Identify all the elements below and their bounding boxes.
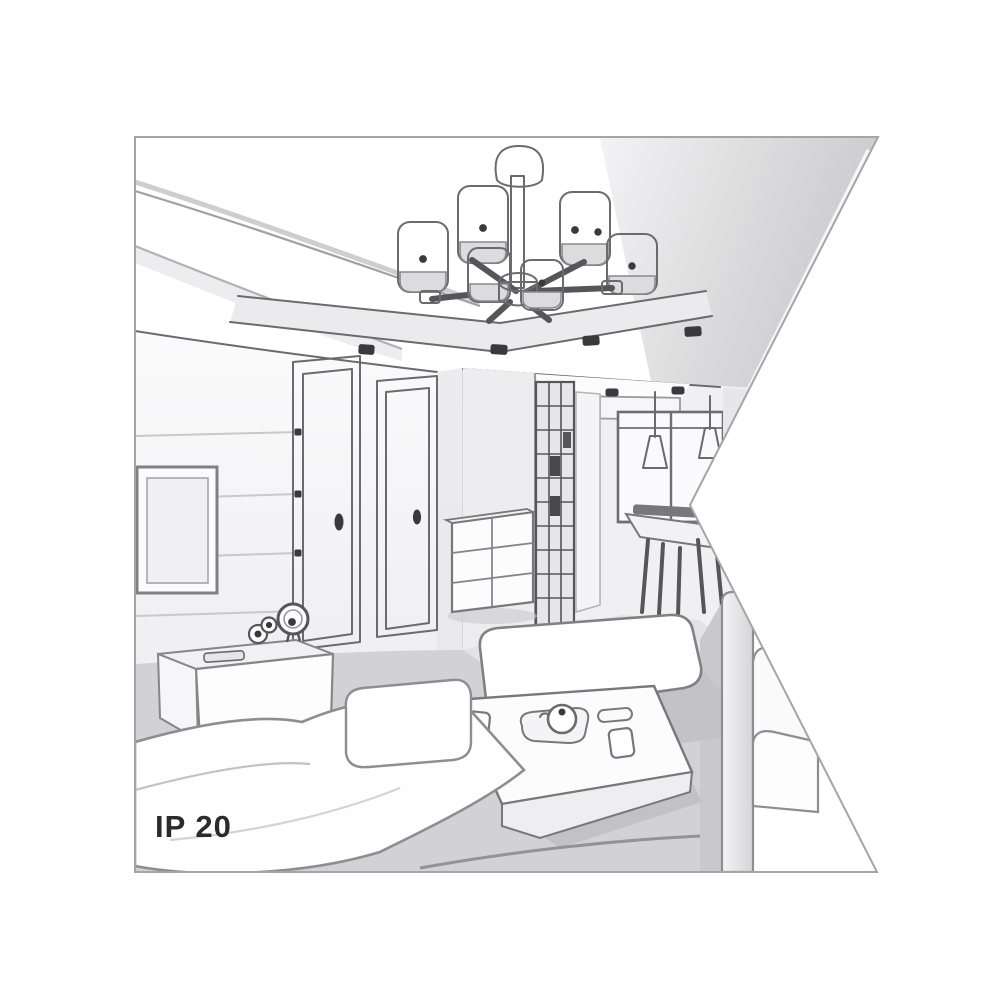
ip-rating-label: IP 20: [155, 809, 232, 844]
room-line-drawing: IP 20: [0, 0, 1000, 1000]
downlight-icon: [606, 389, 618, 396]
plate-icon: [598, 708, 633, 723]
downlight-icon: [491, 344, 508, 354]
glass-cabinet: [536, 382, 574, 626]
downlight-icon: [685, 326, 702, 336]
downlight-icon: [359, 345, 375, 355]
door-handle-icon: [335, 514, 343, 530]
remote-on-sideboard: [204, 651, 245, 663]
cup-icon: [608, 727, 635, 758]
tv-screen: [137, 467, 217, 593]
downlight-icon: [583, 335, 600, 345]
door-handle-icon: [413, 510, 420, 524]
hallway: [463, 368, 762, 650]
product-illustration-room-sketch: IP 20: [0, 0, 1000, 1000]
downlight-icon: [672, 387, 684, 394]
